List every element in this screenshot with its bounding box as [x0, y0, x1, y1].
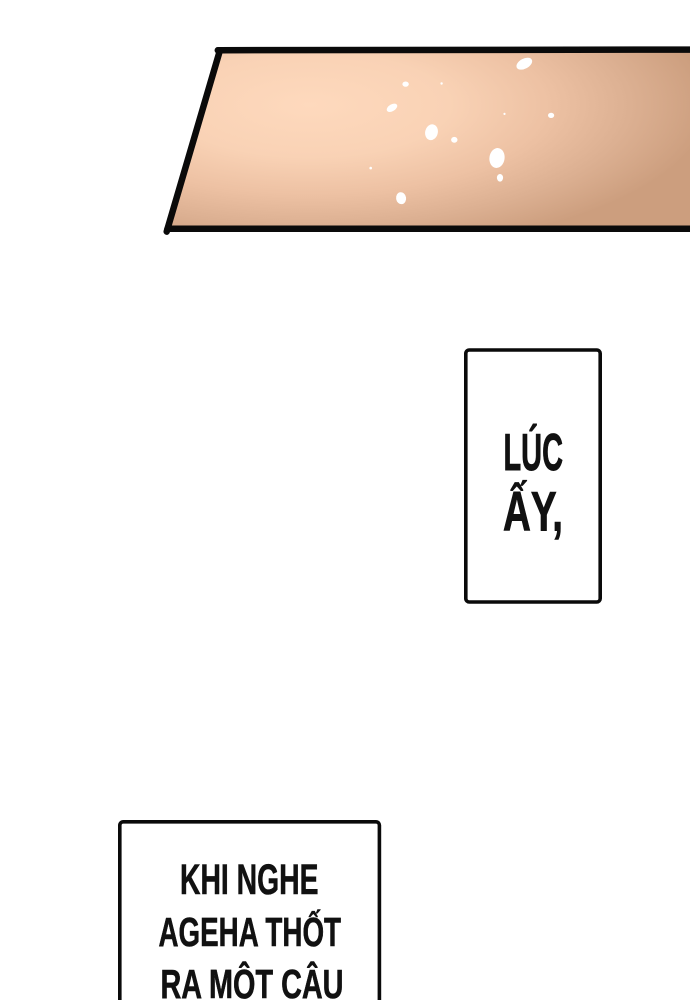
svg-text:ẤY,: ẤY,: [503, 480, 563, 543]
svg-text:RA MỘT CÂU: RA MỘT CÂU: [161, 961, 344, 1000]
svg-text:AGEHA THỐT: AGEHA THỐT: [159, 909, 342, 955]
svg-text:LÚC: LÚC: [504, 424, 564, 482]
svg-text:KHI NGHE: KHI NGHE: [180, 856, 319, 904]
